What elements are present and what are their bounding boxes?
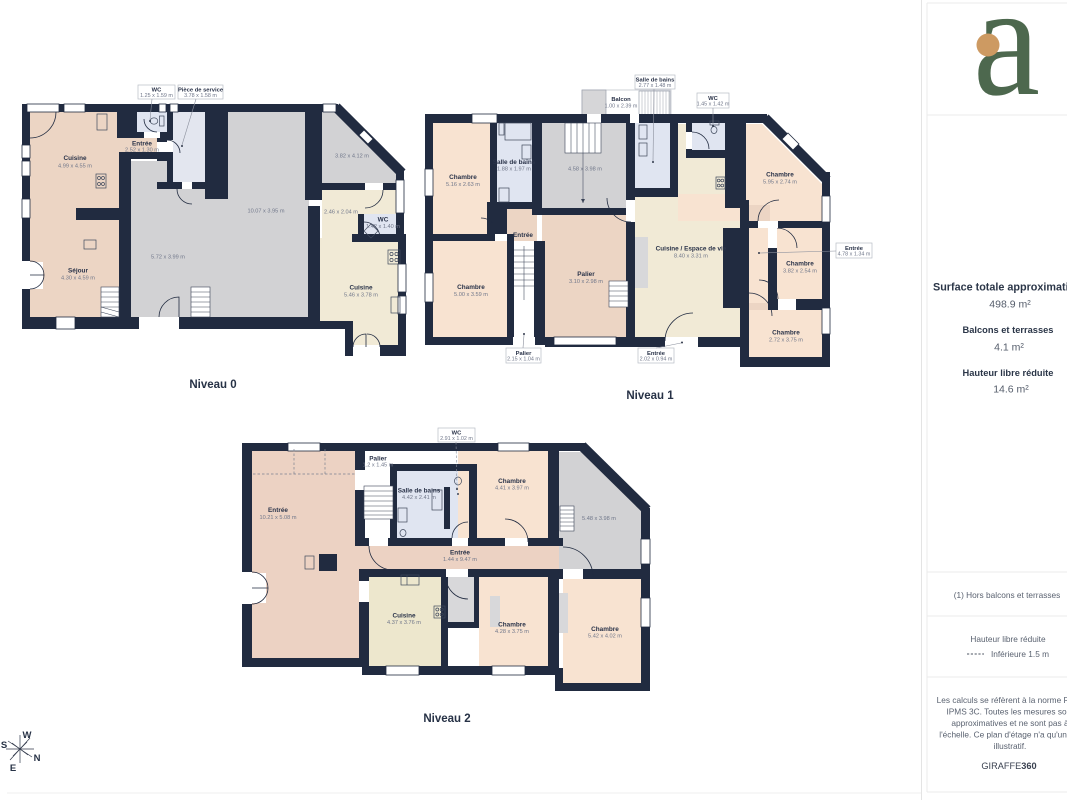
svg-text:Entrée: Entrée — [268, 507, 288, 514]
svg-text:Cuisine: Cuisine — [63, 155, 87, 162]
svg-text:Chambre: Chambre — [591, 626, 619, 633]
svg-text:Palier: Palier — [577, 271, 595, 278]
svg-text:2.91 x 1.02 m: 2.91 x 1.02 m — [440, 436, 473, 442]
svg-text:GIRAFFE360: GIRAFFE360 — [981, 761, 1036, 771]
svg-text:10.21 x 5.08 m: 10.21 x 5.08 m — [259, 515, 296, 521]
svg-text:1.2 x 1.45 m: 1.2 x 1.45 m — [363, 463, 394, 469]
svg-text:5.48 x 3.98 m: 5.48 x 3.98 m — [582, 516, 616, 522]
svg-text:Chambre: Chambre — [498, 622, 526, 629]
svg-text:Cuisine: Cuisine — [349, 285, 373, 292]
svg-text:5.95 x 2.74 m: 5.95 x 2.74 m — [763, 180, 797, 186]
svg-text:Chambre: Chambre — [498, 478, 526, 485]
svg-text:3.78 x 1.58 m: 3.78 x 1.58 m — [184, 93, 217, 99]
svg-text:Chambre: Chambre — [786, 261, 814, 268]
svg-text:4.28 x 3.75 m: 4.28 x 3.75 m — [495, 629, 529, 635]
svg-text:S: S — [1, 740, 7, 751]
svg-text:W: W — [23, 730, 32, 741]
svg-text:E: E — [10, 763, 16, 774]
svg-text:3.10 x 2.98 m: 3.10 x 2.98 m — [569, 279, 603, 285]
svg-text:4.1 m²: 4.1 m² — [994, 342, 1024, 354]
svg-text:2.15 x 1.04 m: 2.15 x 1.04 m — [507, 357, 540, 363]
svg-text:1.42 x 1.40 m: 1.42 x 1.40 m — [366, 224, 400, 230]
svg-text:5.42 x 4.02 m: 5.42 x 4.02 m — [588, 634, 622, 640]
svg-text:5.72 x 3.99 m: 5.72 x 3.99 m — [151, 255, 185, 261]
svg-text:4.30 x 4.59 m: 4.30 x 4.59 m — [61, 276, 95, 282]
svg-text:5.46 x 3.78 m: 5.46 x 3.78 m — [344, 293, 378, 299]
svg-text:1.25 x 1.59 m: 1.25 x 1.59 m — [140, 93, 173, 99]
svg-text:Palier: Palier — [369, 456, 387, 463]
svg-text:approximatives et ne sont pas: approximatives et ne sont pas à — [951, 718, 1067, 728]
svg-text:4.37 x 3.76 m: 4.37 x 3.76 m — [387, 620, 421, 626]
svg-text:Séjour: Séjour — [68, 268, 88, 275]
svg-text:Entrée: Entrée — [513, 232, 533, 239]
svg-text:Chambre: Chambre — [772, 330, 800, 337]
svg-text:10.07 x 3.95 m: 10.07 x 3.95 m — [247, 209, 284, 215]
svg-text:Niveau 1: Niveau 1 — [626, 390, 674, 402]
svg-text:Chambre: Chambre — [766, 172, 794, 179]
svg-text:Salle de bains: Salle de bains — [398, 488, 441, 495]
svg-text:(1) Hors balcons et terrasses: (1) Hors balcons et terrasses — [954, 590, 1061, 600]
svg-text:Chambre: Chambre — [449, 174, 477, 181]
svg-text:2.52 x 1.30 m: 2.52 x 1.30 m — [125, 148, 159, 154]
svg-text:Salle de bains: Salle de bains — [493, 159, 536, 166]
svg-text:Niveau 2: Niveau 2 — [423, 713, 470, 725]
svg-text:5.00 x 3.59 m: 5.00 x 3.59 m — [454, 292, 488, 298]
svg-text:Chambre: Chambre — [457, 284, 485, 291]
svg-text:N: N — [34, 753, 41, 764]
svg-text:4.99 x 4.55 m: 4.99 x 4.55 m — [58, 164, 92, 170]
svg-text:4.78 x 1.34 m: 4.78 x 1.34 m — [838, 252, 871, 258]
svg-text:14.6 m²: 14.6 m² — [993, 384, 1029, 396]
svg-text:Entrée: Entrée — [132, 141, 152, 148]
svg-text:3.82 x 4.12 m: 3.82 x 4.12 m — [335, 154, 369, 160]
svg-text:illustratif.: illustratif. — [994, 741, 1027, 751]
svg-text:2.77 x 1.48 m: 2.77 x 1.48 m — [639, 83, 672, 89]
svg-text:Hauteur libre réduite: Hauteur libre réduite — [963, 368, 1054, 378]
svg-text:8.40 x 3.31 m: 8.40 x 3.31 m — [674, 254, 708, 260]
svg-text:l'échelle. Ce plan d'étage n'a: l'échelle. Ce plan d'étage n'a qu'un but — [939, 730, 1067, 740]
svg-text:2.72 x 3.75 m: 2.72 x 3.75 m — [769, 338, 803, 344]
svg-text:1.88 x 1.97 m: 1.88 x 1.97 m — [497, 167, 531, 173]
svg-text:Cuisine / Espace de vie: Cuisine / Espace de vie — [656, 246, 727, 253]
svg-text:1.00 x 2.39 m: 1.00 x 2.39 m — [605, 104, 638, 110]
svg-text:498.9 m²: 498.9 m² — [989, 299, 1031, 311]
svg-text:1.44 x 9.47 m: 1.44 x 9.47 m — [443, 557, 477, 563]
svg-text:Les calculs se réfèrent à la n: Les calculs se réfèrent à la norme RICS — [937, 695, 1067, 705]
svg-text:Niveau 0: Niveau 0 — [189, 379, 236, 391]
svg-text:2.02 x 0.94 m: 2.02 x 0.94 m — [640, 357, 673, 363]
svg-text:4.58 x 3.98 m: 4.58 x 3.98 m — [568, 167, 602, 173]
svg-text:Cuisine: Cuisine — [392, 613, 416, 620]
svg-text:Surface totale approximative ³: Surface totale approximative ³ — [933, 282, 1067, 294]
svg-text:2.46 x 2.04 m: 2.46 x 2.04 m — [324, 210, 358, 216]
svg-text:3.82 x 2.54 m: 3.82 x 2.54 m — [783, 269, 817, 275]
svg-text:5.16 x 2.63 m: 5.16 x 2.63 m — [446, 182, 480, 188]
svg-text:Entrée: Entrée — [450, 550, 470, 557]
svg-text:Balcons et terrasses: Balcons et terrasses — [963, 325, 1054, 335]
svg-text:Inférieure 1.5 m: Inférieure 1.5 m — [991, 649, 1049, 659]
svg-text:1.45 x 1.42 m: 1.45 x 1.42 m — [697, 102, 730, 108]
svg-text:Balcon: Balcon — [611, 97, 631, 103]
svg-text:4.42 x 2.41 m: 4.42 x 2.41 m — [402, 495, 436, 501]
svg-text:a: a — [973, 0, 1040, 129]
svg-text:4.41 x 3.97 m: 4.41 x 3.97 m — [495, 486, 529, 492]
svg-text:IPMS 3C. Toutes les mesures so: IPMS 3C. Toutes les mesures sont — [946, 707, 1067, 717]
svg-text:WC: WC — [378, 217, 389, 224]
svg-text:Hauteur libre réduite: Hauteur libre réduite — [970, 634, 1046, 644]
